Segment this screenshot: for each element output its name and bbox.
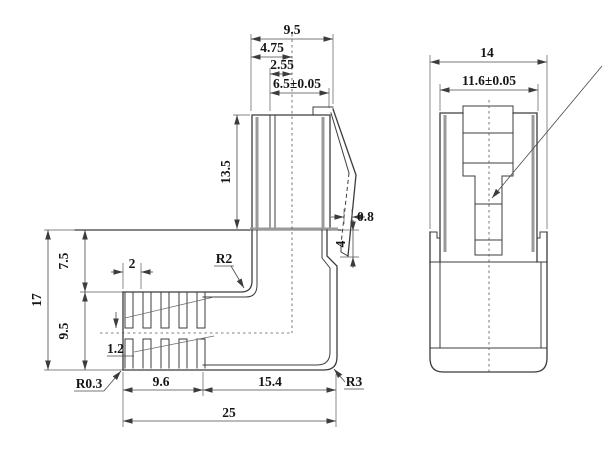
dim-latch-thickness-label: 0.8 — [357, 209, 374, 224]
radius-inner-label: R2 — [216, 251, 233, 266]
radius-outer-label: R3 — [346, 374, 363, 389]
dim-front-overall-width-label: 14 — [480, 45, 494, 60]
dim-body-length-label: 15.4 — [258, 374, 282, 389]
dim-front-plug-width-label: 11.6±0.05 — [462, 73, 516, 88]
technical-drawing-page: 9.5 4.75 2.55 6.5±0.05 13.5 0.8 4 — [0, 0, 606, 461]
dim-plug-height-label: 13.5 — [218, 160, 233, 184]
radius-corner-label: R0.3 — [76, 376, 103, 391]
dim-rib-web-label: 1.2 — [107, 341, 124, 356]
dim-latch-tip-offset-label: 4 — [333, 240, 348, 247]
dim-slot-width-label: 6.5±0.05 — [273, 76, 321, 91]
dim-center-offset-label: 2.55 — [270, 57, 294, 72]
dim-rib-pitch-label: 2 — [129, 256, 136, 271]
dim-lower-height-label: 9.5 — [56, 322, 71, 339]
dim-overall-height-label: 17 — [29, 293, 44, 307]
dim-rib-length-label: 9.6 — [153, 374, 170, 389]
dim-upper-height-label: 7.5 — [56, 252, 71, 269]
dim-overall-width-label: 9.5 — [284, 22, 301, 37]
connector-drawing: 9.5 4.75 2.55 6.5±0.05 13.5 0.8 4 — [0, 0, 606, 461]
dim-overall-length-label: 25 — [222, 405, 236, 420]
dim-half-width-label: 4.75 — [260, 40, 284, 55]
